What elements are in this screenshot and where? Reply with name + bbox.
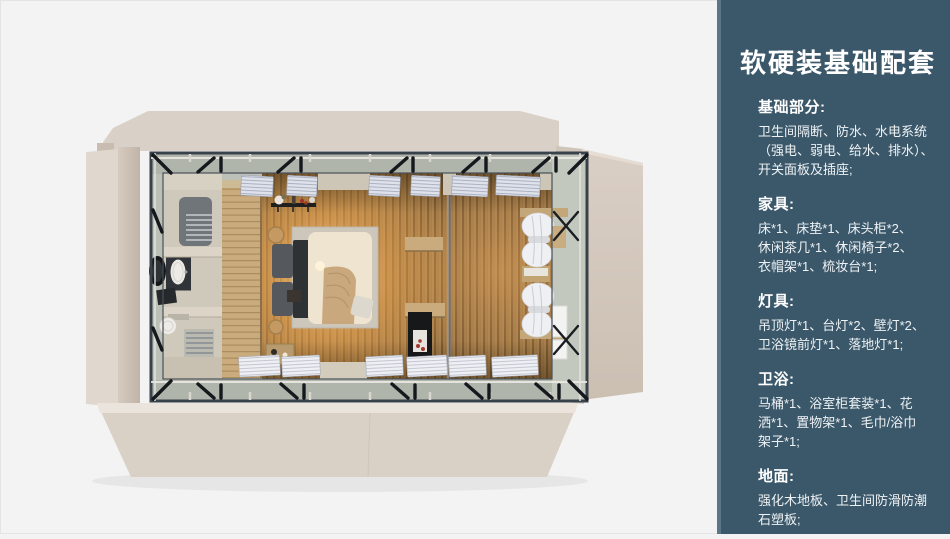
bottom-wall: [97, 403, 578, 477]
ceiling-light-glow: [315, 261, 325, 271]
toilet: [160, 318, 177, 335]
shower-tray: [179, 197, 212, 246]
bed-tray: [287, 290, 301, 302]
floorplan-svg: [0, 0, 716, 534]
section-line: （强电、弱电、给水、排水）、: [758, 141, 942, 160]
section-line: 开关面板及插座;: [758, 160, 942, 179]
section-lighting: 灯具: 吊顶灯*1、台灯*2、壁灯*2、 卫浴镜前灯*1、落地灯*1;: [758, 293, 942, 354]
red-decor: [300, 199, 304, 203]
bottle: [292, 195, 296, 204]
section-line: 石塑板;: [758, 510, 942, 529]
section-floor: 地面: 强化木地板、卫生间防滑防潮 石塑板;: [758, 468, 942, 529]
vanity-stool: [156, 288, 177, 305]
section-line: 休闲茶几*1、休闲椅子*2、: [758, 238, 942, 257]
panel-content: 基础部分: 卫生间隔断、防水、水电系统 （强电、弱电、给水、排水）、 开关面板及…: [721, 80, 950, 529]
section-line: 洒*1、置物架*1、毛巾/浴巾: [758, 413, 942, 432]
section-line: 卫生间隔断、防水、水电系统: [758, 122, 942, 141]
woven-basket: [268, 227, 284, 243]
section-heading: 基础部分:: [758, 99, 942, 117]
wardrobe: [222, 180, 262, 378]
bottom-wall-top-edge: [97, 403, 578, 413]
slide-page: { "sidebar": { "title": "软硬装基础配套", "pane…: [0, 0, 950, 534]
section-basics: 基础部分: 卫生间隔断、防水、水电系统 （强电、弱电、给水、排水）、 开关面板及…: [758, 99, 942, 179]
section-line: 马桶*1、浴室柜套装*1、花: [758, 394, 942, 413]
right-end-panel: [582, 149, 643, 400]
section-line: 卫浴镜前灯*1、落地灯*1;: [758, 335, 942, 354]
section-heading: 地面:: [758, 468, 942, 486]
faucet: [185, 271, 188, 274]
section-furniture: 家具: 床*1、床垫*1、床头柜*2、 休闲茶几*1、休闲椅子*2、 衣帽架*1…: [758, 196, 942, 276]
bathroom-shelf: [163, 247, 222, 257]
panel-title: 软硬装基础配套: [721, 0, 950, 80]
section-bath: 卫浴: 马桶*1、浴室柜套装*1、花 洒*1、置物架*1、毛巾/浴巾 架子*1;: [758, 371, 942, 451]
section-line: 强化木地板、卫生间防滑防潮: [758, 491, 942, 510]
section-line: 吊顶灯*1、台灯*2、壁灯*2、: [758, 316, 942, 335]
section-heading: 家具:: [758, 196, 942, 214]
floorplan-render: [0, 0, 716, 534]
window-blinds-bottom: [239, 355, 539, 377]
shelf: [405, 237, 443, 251]
section-line: 床*1、床垫*1、床头柜*2、: [758, 219, 942, 238]
section-line: 架子*1;: [758, 432, 942, 451]
bed-pillow: [272, 244, 293, 278]
section-line: 衣帽架*1、梳妆台*1;: [758, 257, 942, 276]
woven-basket: [269, 320, 283, 334]
section-heading: 卫浴:: [758, 371, 942, 389]
section-heading: 灯具:: [758, 293, 942, 311]
info-panel: 软硬装基础配套 基础部分: 卫生间隔断、防水、水电系统 （强电、弱电、给水、排水…: [717, 0, 950, 534]
headboard: [293, 240, 310, 318]
left-wall-edge: [118, 147, 140, 409]
knit-throw: [322, 267, 356, 325]
top-wall: [97, 111, 559, 151]
